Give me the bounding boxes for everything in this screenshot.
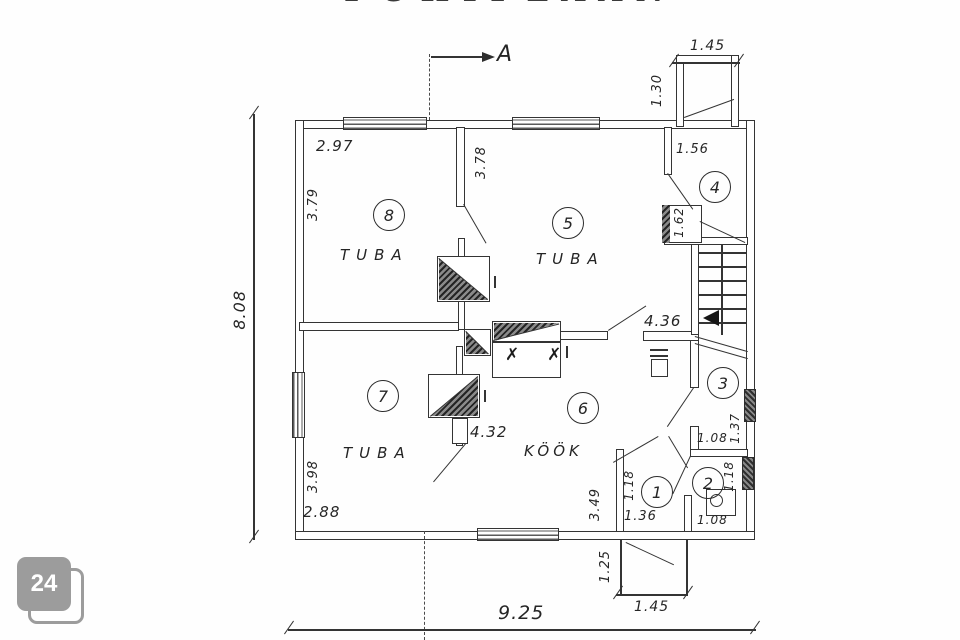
section-label: A: [497, 42, 513, 67]
door-gap-bottom: [624, 532, 682, 539]
room-3-number: 3: [718, 374, 728, 393]
wall-hall-room3-upper: [690, 340, 699, 388]
dim-line-left: [253, 114, 255, 540]
door-swing-top-porch: [684, 99, 734, 118]
dim-room5-height: 3.78: [474, 146, 489, 179]
flue-duct: [651, 359, 668, 377]
wall-wc-top: [690, 449, 748, 457]
section-line-top: [429, 54, 430, 120]
room-6-number: 6: [578, 399, 588, 418]
room-1-circle: 1: [641, 476, 673, 508]
room-5-number: 5: [563, 214, 573, 233]
dim-room7-height: 3.98: [306, 460, 321, 493]
window-bottom: [477, 528, 559, 541]
room-7-number: 7: [378, 387, 388, 406]
stair-rail-2: [695, 343, 748, 359]
room-6-circle: 6: [567, 392, 599, 424]
window-top-1: [343, 117, 427, 130]
room-4-circle: 4: [699, 171, 731, 203]
door-swing-room3: [667, 387, 694, 427]
flue-symbol-bar-2: [650, 355, 668, 357]
door-gap-top: [686, 121, 730, 128]
room-7-label: TUBA: [343, 444, 412, 462]
dim-tick: [683, 586, 693, 600]
stair-center-line: [721, 245, 723, 335]
kitchen-range-divider: [493, 341, 560, 343]
wall-room8-room5: [456, 127, 465, 207]
clipped-title-text: PÕHIPLAAN: [346, 0, 679, 9]
vent-mark-3: [484, 390, 486, 402]
dim-room8-width: 2.97: [316, 137, 353, 155]
wall-room4-left: [664, 127, 672, 175]
dim-tick: [284, 621, 294, 635]
dim-room3-width: 1.08: [697, 431, 728, 445]
dim-kitchen-width: 4.32: [470, 423, 507, 441]
stair-tread: [699, 294, 746, 296]
watermark-badge: 24: [17, 557, 71, 611]
dim-total-height: 8.08: [230, 290, 249, 330]
stair-tread: [699, 280, 746, 282]
door-swing-room7: [433, 443, 466, 482]
dim-top-porch-width: 1.45: [690, 38, 725, 54]
chimney-stub: [452, 418, 468, 444]
room-3-circle: 3: [707, 367, 739, 399]
room-2-number: 2: [703, 474, 713, 493]
vent-mark-1: [494, 276, 496, 288]
room-8-circle: 8: [373, 199, 405, 231]
dim-room7-width: 2.88: [303, 503, 340, 521]
dim-line-bottom-porch: [616, 594, 688, 596]
dim-wc-depth: 1.18: [722, 461, 736, 492]
dim-top-porch-depth: 1.30: [650, 74, 665, 107]
dim-entry-depth: 1.18: [622, 470, 636, 501]
dim-line-top-porch: [672, 62, 740, 64]
dim-room8-height: 3.79: [306, 188, 321, 221]
room-1-number: 1: [652, 483, 662, 502]
room-7-circle: 7: [367, 380, 399, 412]
flue-symbol-bar-1: [650, 349, 668, 351]
door-swing-bottom-porch: [626, 542, 674, 565]
watermark-label: 24: [31, 570, 58, 598]
room-4-number: 4: [710, 178, 720, 197]
window-top-2: [512, 117, 600, 130]
porch-bottom-right-line: [686, 540, 688, 594]
dim-bottom-porch-width: 1.45: [634, 599, 669, 615]
room-5-circle: 5: [552, 207, 584, 239]
stair-tread: [699, 252, 746, 254]
wall-room5-kitchen: [558, 331, 608, 340]
floor-plan: PÕHIPLAAN ✗ ✗: [0, 0, 960, 640]
vent-mark-2: [566, 346, 568, 358]
range-burner-marks: ✗ ✗: [505, 345, 572, 365]
dim-hall-width: 4.36: [644, 312, 681, 330]
wall-stub-below-stove: [458, 300, 465, 330]
dim-room4-closet: 1.62: [672, 207, 686, 238]
window-left: [292, 372, 305, 438]
room4-closet-hatch: [662, 205, 670, 243]
dim-total-width: 9.25: [498, 602, 544, 624]
wall-room8-room7: [299, 322, 459, 331]
dim-bottom-porch-depth: 1.25: [598, 550, 613, 583]
section-line-bottom: [424, 531, 425, 640]
wall-entry-wc: [684, 495, 692, 532]
dim-kitchen-door: 3.49: [588, 488, 603, 521]
room-8-label: TUBA: [340, 246, 409, 264]
dim-tick: [750, 621, 760, 635]
room-5-label: TUBA: [536, 250, 605, 268]
dim-entry-width: 1.36: [624, 509, 657, 524]
wall-stairs-left: [691, 243, 699, 335]
room-2-circle: 2: [692, 467, 724, 499]
room-8-number: 8: [384, 206, 394, 225]
door-swing-room5: [608, 305, 646, 330]
stair-tread: [699, 266, 746, 268]
dim-wc-width: 1.08: [697, 513, 728, 527]
clipped-title: PÕHIPLAAN: [340, 0, 760, 11]
dim-room4-entry: 1.56: [676, 142, 709, 157]
room-6-label: KÖÖK: [524, 442, 583, 460]
section-arrow-head: [482, 52, 495, 62]
stair-direction-arrow: [703, 310, 719, 326]
window-right-2: [742, 457, 754, 490]
window-right-1: [744, 389, 756, 422]
dim-line-bottom: [288, 629, 756, 631]
door-swing-room8: [463, 204, 486, 243]
dim-room3-depth: 1.37: [728, 413, 742, 444]
section-arrow-line: [431, 56, 483, 58]
door-swing-wc: [672, 456, 691, 494]
